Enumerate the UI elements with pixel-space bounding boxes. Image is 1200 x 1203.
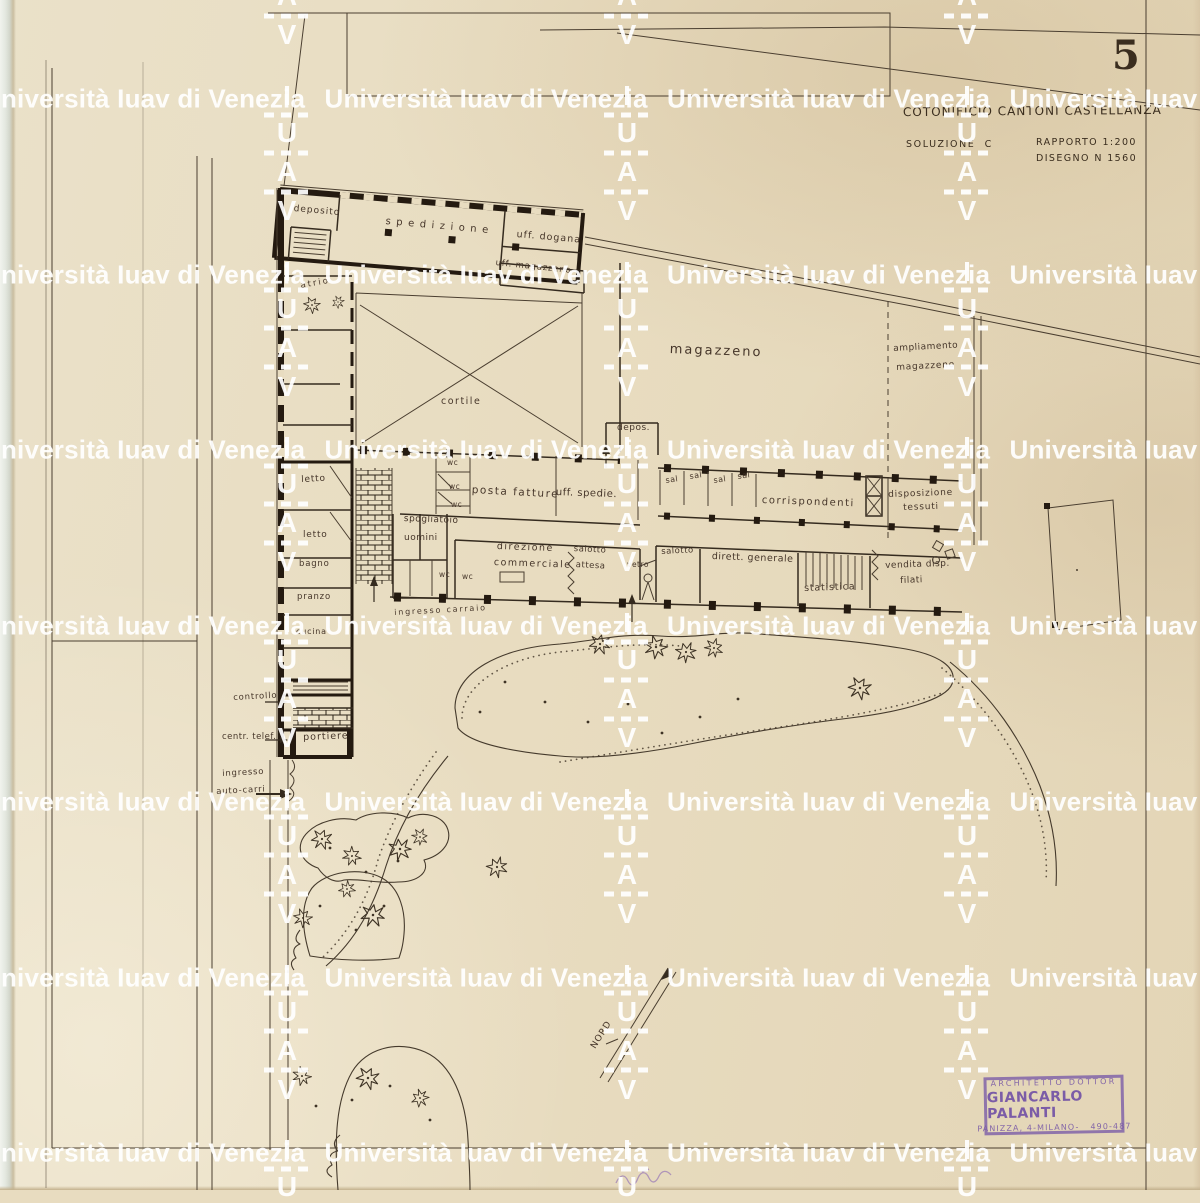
room-labels-layer: depositospedizioneuff. doganauff. magazz… [0,0,1200,1190]
architect-stamp: ARCHITETTO DOTTOR GIANCARLO PALANTI PANI… [983,1075,1124,1136]
room-label-ingresso: ingresso [222,768,265,779]
sheet-number: 5 [1112,32,1140,79]
room-label-ampliamento: ampliamento [893,342,958,354]
room-label-uff-dogana: uff. dogana [516,230,581,245]
room-label-cortile: cortile [441,397,481,407]
room-label-sal: sal [665,475,679,485]
room-label-wc: wc [449,483,460,491]
room-label-vetro: vetro [627,561,649,569]
room-label-direzione: direzione [497,542,554,553]
room-label-attesa: attesa [576,561,606,571]
room-label-wc: wc [462,573,473,581]
scale-label: RAPPORTO 1:200 [1036,137,1137,148]
room-label-wc: wc [439,571,450,579]
room-label-portiere: portiere [303,731,349,742]
room-label-sal: sal [689,471,703,481]
drawing-number: DISEGNO N 1560 [1036,153,1137,164]
room-label-magazzeno: magazzeno [670,343,763,359]
room-label-cucina: cucina [296,628,327,636]
room-label-vendita-disp-: vendita disp. [885,560,950,571]
room-label-sal: sal [737,471,751,481]
room-label-letto: letto [303,531,328,540]
solution-label: SOLUZIONE C [906,139,993,150]
room-label-nord: NORD [590,1020,614,1051]
room-label-wc: wc [451,501,462,509]
room-label-dirett-generale: dirett. generale [712,552,794,564]
room-label-letto: letto [301,475,326,485]
room-label-wc: wc [447,459,458,467]
stamp-line-3: PANIZZA, 4-MILANO- 490-487 [977,1122,1131,1134]
room-label-auto-carri: auto-carri [216,785,266,796]
room-label-filati: filati [900,576,923,586]
room-label-bagno: bagno [299,560,330,569]
room-label-posta-fatture: posta fatture [471,485,559,500]
room-label-uff-magazzeno: uff. magazzeno [495,259,572,275]
room-label-sal: sal [713,475,727,485]
room-label-depos-: depos. [617,424,650,433]
plan-title: COTONIFICIO CANTONI CASTELLANZA [903,103,1162,119]
room-label-pranzo: pranzo [297,593,331,602]
room-label-commerciale: commerciale [494,558,572,570]
room-label-uomini: uomini [404,534,438,543]
room-label-tessuti: tessuti [903,503,939,513]
room-label-controllo: controllo [233,692,278,703]
room-label-salotto: salotto [574,545,607,555]
room-label-centr-telef-: centr. telef. [222,733,276,742]
room-label-ingresso-carraio: ingresso carraio [394,604,487,617]
stamp-line-1: ARCHITETTO DOTTOR [990,1077,1116,1088]
room-label-magazzeno: magazzeno [896,361,955,373]
room-label-deposito: deposito [293,205,340,218]
room-label-disposizione: disposizione [888,489,953,500]
room-label-atrio: atrio [300,277,331,291]
room-label-statistica: statistica [804,582,856,593]
room-label-uff-spedie-: uff. spedie. [556,488,617,500]
room-label-spogliatoio: spogliatoio [404,515,459,526]
room-label-salotto: salotto [661,546,694,556]
room-label-spedizione: spedizione [385,217,494,236]
stamp-line-2: GIANCARLO PALANTI [987,1088,1122,1123]
room-label-corrispondenti: corrispondenti [762,496,855,509]
